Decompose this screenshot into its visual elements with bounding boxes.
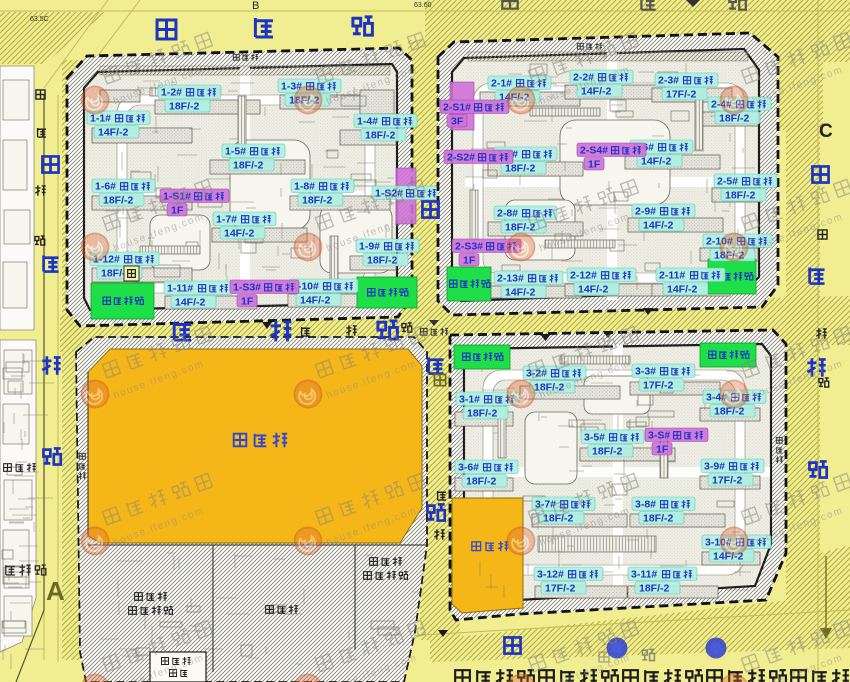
svg-text:2-3#: 2-3#	[658, 75, 679, 87]
svg-text:1-S3#: 1-S3#	[233, 282, 261, 294]
svg-text:18F/-2: 18F/-2	[643, 513, 674, 525]
svg-text:2-13#: 2-13#	[497, 273, 524, 285]
svg-text:18F/-2: 18F/-2	[639, 583, 670, 595]
svg-text:14F/-2: 14F/-2	[641, 156, 672, 168]
svg-text:18F/-2: 18F/-2	[592, 446, 623, 458]
svg-text:2-8#: 2-8#	[497, 208, 518, 220]
svg-text:14F/-2: 14F/-2	[505, 287, 536, 299]
svg-text:1-1#: 1-1#	[90, 113, 111, 125]
svg-text:3-8#: 3-8#	[635, 499, 656, 511]
svg-text:18F/-2: 18F/-2	[466, 476, 497, 488]
svg-text:2-9#: 2-9#	[635, 206, 656, 218]
svg-text:2-S2#: 2-S2#	[447, 152, 475, 164]
svg-text:63.5C: 63.5C	[30, 16, 49, 23]
svg-text:1-4#: 1-4#	[357, 116, 378, 128]
svg-text:14F/-2: 14F/-2	[175, 297, 206, 309]
svg-text:1-8#: 1-8#	[294, 181, 315, 193]
svg-text:2-11#: 2-11#	[659, 270, 685, 282]
svg-text:14F/-2: 14F/-2	[667, 284, 698, 296]
svg-text:1-9#: 1-9#	[359, 241, 380, 253]
svg-text:C: C	[819, 121, 833, 142]
svg-text:3-9#: 3-9#	[704, 461, 725, 473]
svg-text:2-1#: 2-1#	[491, 78, 512, 90]
svg-text:18F/-2: 18F/-2	[365, 130, 396, 142]
svg-text:1-11#: 1-11#	[167, 283, 193, 295]
svg-text:17F/-2: 17F/-2	[545, 583, 576, 595]
svg-text:3-5#: 3-5#	[584, 432, 605, 444]
svg-text:63.60: 63.60	[414, 2, 432, 9]
svg-text:2-S4#: 2-S4#	[580, 145, 608, 157]
svg-text:17F/-2: 17F/-2	[643, 380, 674, 392]
svg-text:2-S3#: 2-S3#	[455, 241, 483, 253]
svg-text:18F/-2: 18F/-2	[169, 101, 200, 113]
svg-text:2-S1#: 2-S1#	[443, 102, 471, 114]
svg-text:3-3#: 3-3#	[635, 366, 656, 378]
svg-text:A: A	[46, 576, 65, 606]
svg-text:3-S#: 3-S#	[648, 430, 670, 442]
svg-text:18F/-2: 18F/-2	[725, 190, 756, 202]
svg-text:17F/-2: 17F/-2	[666, 89, 697, 101]
svg-text:18F/-2: 18F/-2	[543, 513, 574, 525]
svg-text:2-5#: 2-5#	[717, 176, 738, 188]
svg-text:3-6#: 3-6#	[458, 462, 479, 474]
svg-text:18F/-2: 18F/-2	[505, 163, 536, 175]
svg-text:3-1#: 3-1#	[459, 394, 480, 406]
svg-text:14F/-2: 14F/-2	[98, 127, 129, 139]
svg-text:1-6#: 1-6#	[95, 181, 116, 193]
svg-text:1-7#: 1-7#	[216, 214, 237, 226]
svg-text:1F: 1F	[656, 444, 669, 456]
svg-text:17F/-2: 17F/-2	[712, 475, 743, 487]
svg-text:2-12#: 2-12#	[570, 270, 597, 282]
svg-text:18F/-2: 18F/-2	[467, 408, 498, 420]
svg-text:1F: 1F	[171, 205, 184, 217]
svg-text:14F/-2: 14F/-2	[578, 284, 609, 296]
svg-text:1F: 1F	[241, 296, 254, 308]
svg-text:18F/-2: 18F/-2	[302, 195, 333, 207]
svg-text:14F/-2: 14F/-2	[643, 220, 674, 232]
svg-text:3F: 3F	[451, 116, 464, 128]
svg-text:3-11#: 3-11#	[631, 569, 657, 581]
svg-text:B: B	[252, 0, 259, 12]
svg-text:1F: 1F	[463, 255, 476, 267]
svg-text:18F/-2: 18F/-2	[367, 255, 398, 267]
svg-text:3-12#: 3-12#	[537, 569, 564, 581]
svg-text:14F/-2: 14F/-2	[224, 228, 255, 240]
svg-text:14F/-2: 14F/-2	[300, 295, 331, 307]
svg-text:1F: 1F	[588, 159, 601, 171]
svg-text:18F/-2: 18F/-2	[233, 160, 264, 172]
svg-text:1-5#: 1-5#	[225, 146, 246, 158]
svg-text:18F/-2: 18F/-2	[103, 195, 134, 207]
